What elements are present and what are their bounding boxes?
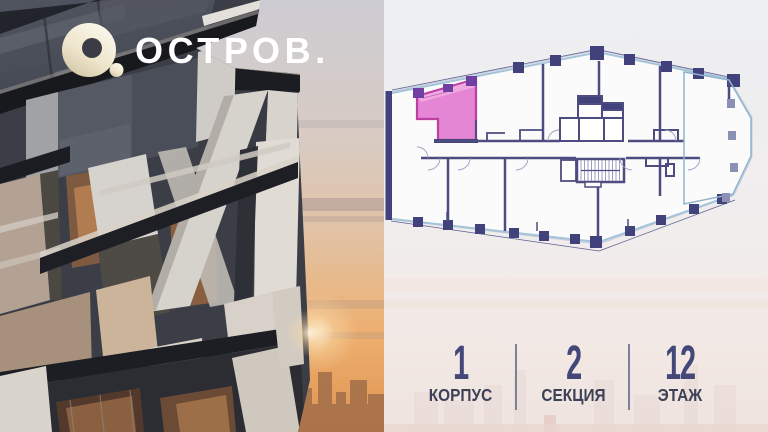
svg-text:ОСТРОВ.: ОСТРОВ. — [135, 30, 330, 71]
